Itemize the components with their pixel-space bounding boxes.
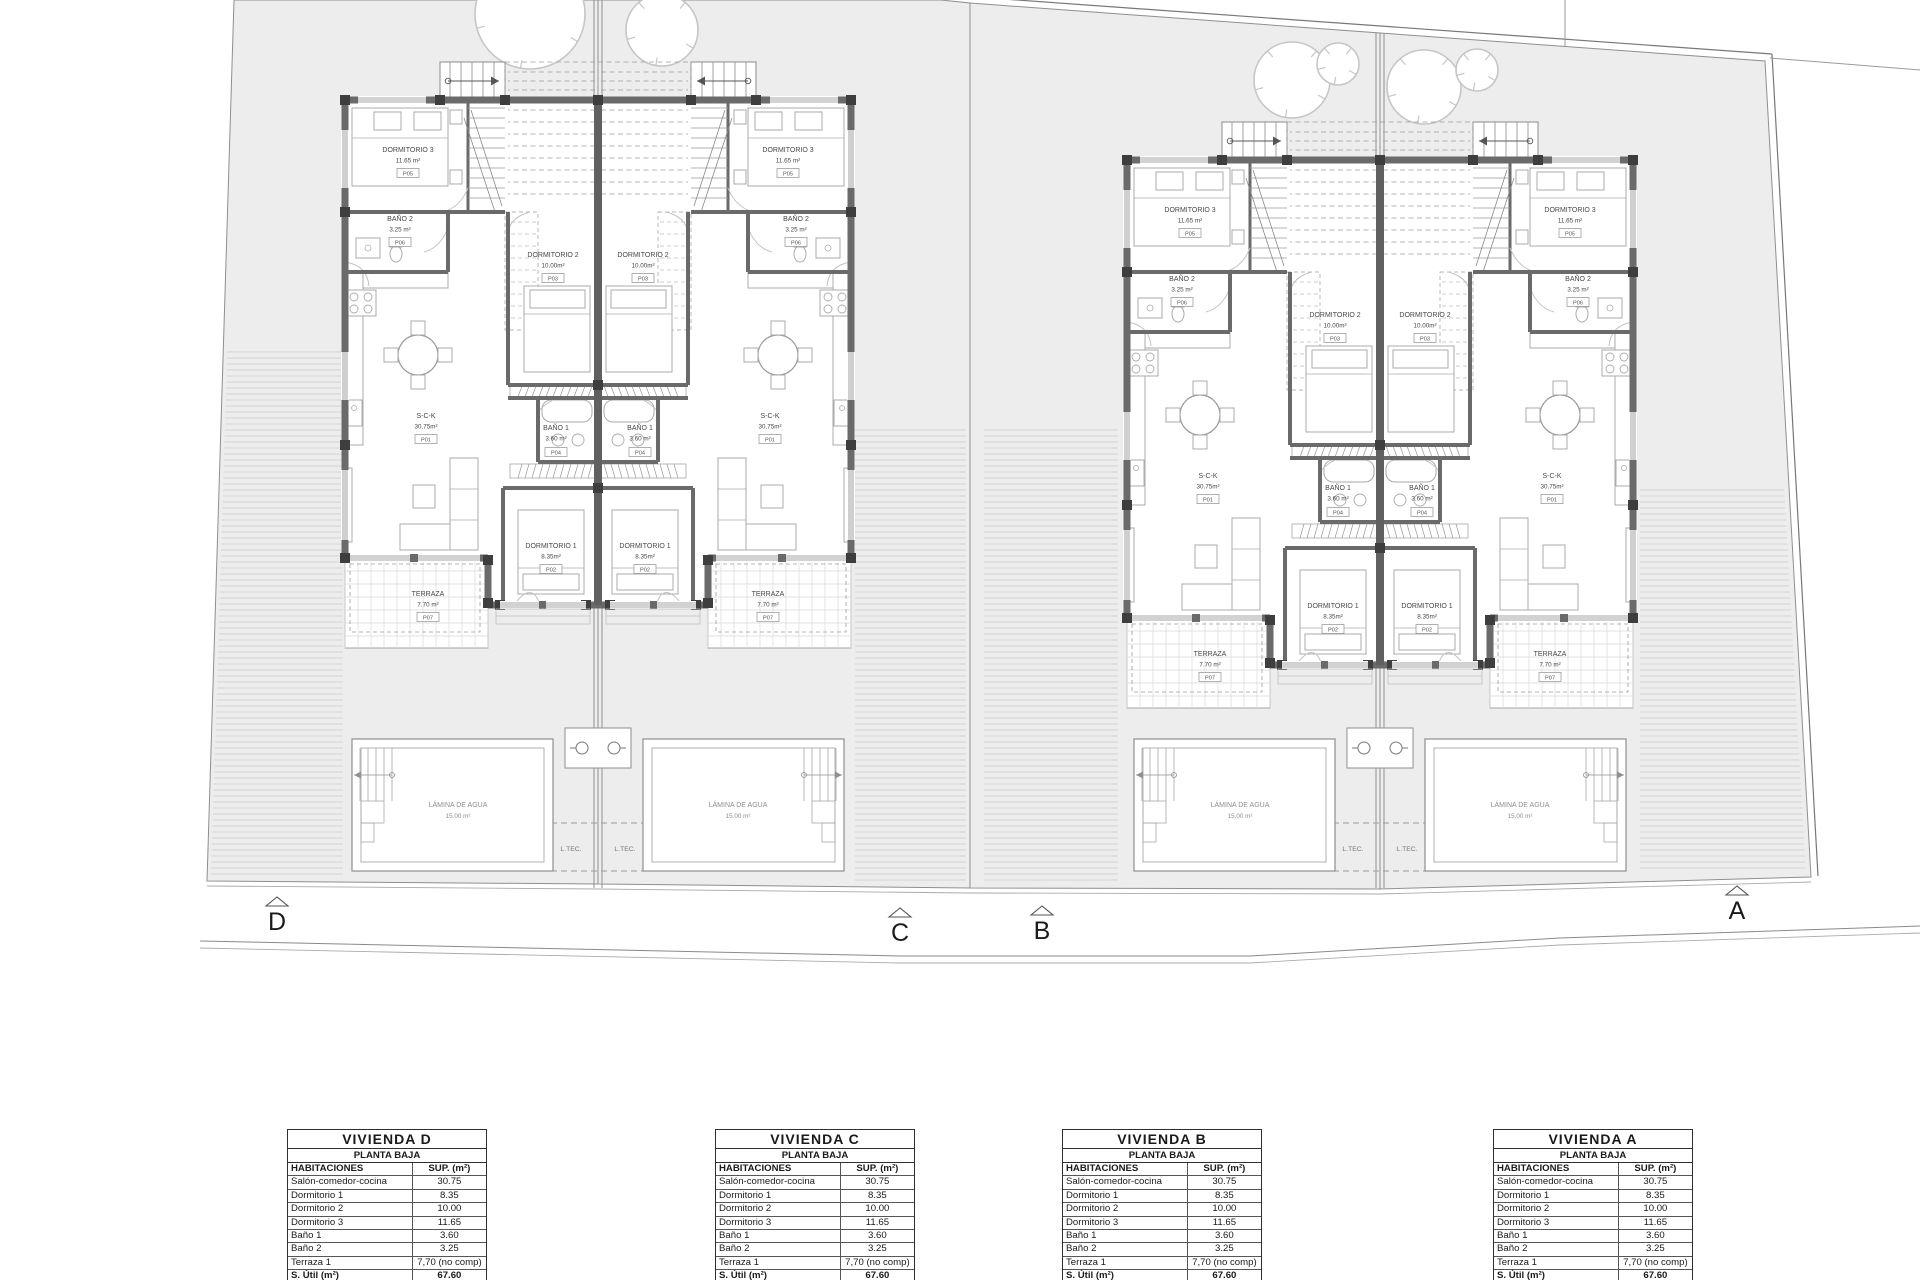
room-label: 3.60 m² <box>545 436 566 443</box>
room-label: DORMITORIO 3 <box>1544 207 1595 214</box>
table-row: Dormitorio 3 11.65 <box>288 1217 486 1230</box>
room-label: DORMITORIO 1 <box>1307 603 1358 610</box>
table-row: Salón-comedor-cocina 30.75 <box>1494 1176 1692 1189</box>
table-row: Dormitorio 2 10.00 <box>288 1203 486 1216</box>
room-label: P07 <box>1205 675 1215 681</box>
room-label: 10.00m² <box>631 263 654 270</box>
room-label: LÁMINA DE AGUA <box>429 800 488 809</box>
table-row: Baño 2 3.25 <box>716 1243 914 1256</box>
room-label: 7.70 m² <box>1199 662 1220 669</box>
room-label: 30.75m² <box>1540 484 1563 491</box>
table-row: Terraza 1 7,70 (no comp) <box>716 1257 914 1270</box>
room-label: P04 <box>635 450 645 456</box>
room-label: 3.60 m² <box>629 436 650 443</box>
room-label: 30.75m² <box>758 424 781 431</box>
table-row: Salón-comedor-cocina 30.75 <box>288 1176 486 1189</box>
section-marker-D: D <box>266 897 288 936</box>
table-row: Dormitorio 3 11.65 <box>1494 1217 1692 1230</box>
site-plan-sheet: TERRAZA7.70 m²P07DORMITORIO 311.65 m²P05… <box>0 0 1920 1280</box>
table-row: Baño 1 3.60 <box>288 1230 486 1243</box>
room-label: L.TEC. <box>1396 846 1417 853</box>
dining-table <box>758 335 798 375</box>
table-row: Baño 2 3.25 <box>1063 1243 1261 1256</box>
table-row: Dormitorio 3 11.65 <box>1063 1217 1261 1230</box>
table-header-row: HABITACIONES SUP. (m²) <box>716 1163 914 1176</box>
table-header-row: HABITACIONES SUP. (m²) <box>1494 1163 1692 1176</box>
room-label: P06 <box>1177 300 1187 306</box>
room-label: DORMITORIO 2 <box>1309 312 1360 319</box>
room-label: L.TEC. <box>614 846 635 853</box>
room-label: P06 <box>395 240 405 246</box>
area-table-C: VIVIENDA CPLANTA BAJA HABITACIONES SUP. … <box>715 1129 915 1280</box>
area-table-A: VIVIENDA APLANTA BAJA HABITACIONES SUP. … <box>1493 1129 1693 1280</box>
dining-table <box>1180 395 1220 435</box>
table-row: Baño 1 3.60 <box>716 1230 914 1243</box>
room-label: 10.00m² <box>541 263 564 270</box>
table-row: Terraza 1 7,70 (no comp) <box>1063 1257 1261 1270</box>
room-label: 15.00 m² <box>726 813 751 820</box>
room-label: L.TEC. <box>560 846 581 853</box>
room-label: BAÑO 1 <box>1325 483 1351 492</box>
room-label: S-C-K <box>1542 473 1561 480</box>
room-label: 8.35m² <box>635 554 655 561</box>
room-label: TERRAZA <box>1534 651 1567 658</box>
table-title: VIVIENDA C <box>716 1130 914 1149</box>
room-label: BAÑO 1 <box>543 423 569 432</box>
room-label: BAÑO 2 <box>783 214 809 223</box>
room-label: TERRAZA <box>1194 651 1227 658</box>
table-row: Dormitorio 1 8.35 <box>1063 1190 1261 1203</box>
room-label: 7.70 m² <box>757 602 778 609</box>
room-label: LÁMINA DE AGUA <box>1491 800 1550 809</box>
table-row: Baño 1 3.60 <box>1494 1230 1692 1243</box>
room-label: P06 <box>791 240 801 246</box>
room-label: P05 <box>403 171 413 177</box>
tree-icon <box>1456 49 1498 91</box>
room-label: P02 <box>546 567 556 573</box>
room-label: P04 <box>551 450 561 456</box>
tree-icon <box>626 0 698 66</box>
table-total-row: S. Útil (m²) 67.60 <box>1063 1270 1261 1280</box>
room-label: P02 <box>640 567 650 573</box>
room-label: TERRAZA <box>752 591 785 598</box>
table-row: Dormitorio 1 8.35 <box>716 1190 914 1203</box>
room-label: 30.75m² <box>414 424 437 431</box>
terrace-C <box>708 558 851 648</box>
room-label: 3.60 m² <box>1411 496 1432 503</box>
room-label: 7.70 m² <box>1539 662 1560 669</box>
room-label: 3.25 m² <box>389 227 410 234</box>
section-marker-letter: D <box>268 908 286 936</box>
room-label: 3.60 m² <box>1327 496 1348 503</box>
room-label: 11.65 m² <box>776 158 800 165</box>
table-row: Baño 1 3.60 <box>1063 1230 1261 1243</box>
room-label: TERRAZA <box>412 591 445 598</box>
tree-icon <box>1317 43 1359 85</box>
table-row: Dormitorio 1 8.35 <box>288 1190 486 1203</box>
room-label: DORMITORIO 2 <box>1399 312 1450 319</box>
table-row: Dormitorio 2 10.00 <box>1063 1203 1261 1216</box>
room-label: P01 <box>1547 497 1557 503</box>
room-label: BAÑO 2 <box>1169 274 1195 283</box>
table-row: Dormitorio 3 11.65 <box>716 1217 914 1230</box>
room-label: P05 <box>1565 231 1575 237</box>
room-label: P02 <box>1422 627 1432 633</box>
room-label: P07 <box>1545 675 1555 681</box>
room-label: 15.00 m² <box>1228 813 1253 820</box>
table-subtitle: PLANTA BAJA <box>1063 1149 1261 1163</box>
room-label: BAÑO 1 <box>1409 483 1435 492</box>
room-label: 30.75m² <box>1196 484 1219 491</box>
room-label: P06 <box>1573 300 1583 306</box>
table-subtitle: PLANTA BAJA <box>288 1149 486 1163</box>
table-row: Baño 2 3.25 <box>288 1243 486 1256</box>
room-label: 10.00m² <box>1323 323 1346 330</box>
tree-icon <box>1387 50 1461 124</box>
table-title: VIVIENDA A <box>1494 1130 1692 1149</box>
road-lines <box>200 926 1920 963</box>
room-label: BAÑO 1 <box>627 423 653 432</box>
site-plan-drawing: TERRAZA7.70 m²P07DORMITORIO 311.65 m²P05… <box>0 0 1920 1280</box>
room-label: 7.70 m² <box>417 602 438 609</box>
room-label: P04 <box>1333 510 1343 516</box>
table-row: Salón-comedor-cocina 30.75 <box>716 1176 914 1189</box>
terrace-A <box>1490 618 1633 708</box>
room-label: P03 <box>638 276 648 282</box>
room-label: 11.65 m² <box>1558 218 1582 225</box>
room-label: P05 <box>783 171 793 177</box>
room-label: 11.65 m² <box>396 158 420 165</box>
section-marker-letter: A <box>1729 897 1746 925</box>
room-label: P02 <box>1328 627 1338 633</box>
room-label: DORMITORIO 3 <box>1164 207 1215 214</box>
table-subtitle: PLANTA BAJA <box>1494 1149 1692 1163</box>
section-marker-letter: C <box>891 919 909 947</box>
room-label: P03 <box>548 276 558 282</box>
room-label: 10.00m² <box>1413 323 1436 330</box>
room-label: LÁMINA DE AGUA <box>709 800 768 809</box>
section-marker-C: C <box>889 908 911 947</box>
table-total-row: S. Útil (m²) 67.60 <box>1494 1270 1692 1280</box>
room-label: P01 <box>1203 497 1213 503</box>
table-row: Terraza 1 7,70 (no comp) <box>1494 1257 1692 1270</box>
table-header-row: HABITACIONES SUP. (m²) <box>1063 1163 1261 1176</box>
room-label: P07 <box>423 615 433 621</box>
dining-table <box>1540 395 1580 435</box>
room-label: S-C-K <box>416 413 435 420</box>
room-label: L.TEC. <box>1342 846 1363 853</box>
room-label: P04 <box>1417 510 1427 516</box>
dining-table <box>398 335 438 375</box>
room-label: P03 <box>1330 336 1340 342</box>
room-label: DORMITORIO 3 <box>762 147 813 154</box>
room-label: DORMITORIO 1 <box>619 543 670 550</box>
room-label: 3.25 m² <box>785 227 806 234</box>
room-label: P05 <box>1185 231 1195 237</box>
tree-icon <box>1254 42 1330 118</box>
room-label: 8.35m² <box>1417 614 1437 621</box>
room-label: DORMITORIO 3 <box>382 147 433 154</box>
table-row: Dormitorio 2 10.00 <box>716 1203 914 1216</box>
table-row: Terraza 1 7,70 (no comp) <box>288 1257 486 1270</box>
room-label: 15.00 m² <box>1508 813 1533 820</box>
room-label: DORMITORIO 2 <box>617 252 668 259</box>
room-label: P03 <box>1420 336 1430 342</box>
room-label: BAÑO 2 <box>387 214 413 223</box>
room-label: DORMITORIO 2 <box>527 252 578 259</box>
table-row: Dormitorio 1 8.35 <box>1494 1190 1692 1203</box>
section-marker-B: B <box>1031 906 1053 945</box>
room-label: 8.35m² <box>541 554 561 561</box>
area-table-B: VIVIENDA BPLANTA BAJA HABITACIONES SUP. … <box>1062 1129 1262 1280</box>
table-total-row: S. Útil (m²) 67.60 <box>716 1270 914 1280</box>
table-title: VIVIENDA D <box>288 1130 486 1149</box>
table-total-row: S. Útil (m²) 67.60 <box>288 1270 486 1280</box>
room-label: 11.65 m² <box>1178 218 1202 225</box>
room-label: 15.00 m² <box>446 813 471 820</box>
room-label: 3.25 m² <box>1567 287 1588 294</box>
table-subtitle: PLANTA BAJA <box>716 1149 914 1163</box>
table-title: VIVIENDA B <box>1063 1130 1261 1149</box>
room-label: BAÑO 2 <box>1565 274 1591 283</box>
room-label: DORMITORIO 1 <box>1401 603 1452 610</box>
table-row: Dormitorio 2 10.00 <box>1494 1203 1692 1216</box>
room-label: 3.25 m² <box>1171 287 1192 294</box>
table-header-row: HABITACIONES SUP. (m²) <box>288 1163 486 1176</box>
table-row: Baño 2 3.25 <box>1494 1243 1692 1256</box>
room-label: 8.35m² <box>1323 614 1343 621</box>
section-marker-letter: B <box>1034 917 1051 945</box>
room-label: S-C-K <box>760 413 779 420</box>
room-label: DORMITORIO 1 <box>525 543 576 550</box>
room-label: LÁMINA DE AGUA <box>1211 800 1270 809</box>
room-label: P01 <box>765 437 775 443</box>
area-table-D: VIVIENDA DPLANTA BAJA HABITACIONES SUP. … <box>287 1129 487 1280</box>
room-label: S-C-K <box>1198 473 1217 480</box>
section-marker-A: A <box>1726 886 1748 925</box>
table-row: Salón-comedor-cocina 30.75 <box>1063 1176 1261 1189</box>
room-label: P01 <box>421 437 431 443</box>
room-label: P07 <box>763 615 773 621</box>
